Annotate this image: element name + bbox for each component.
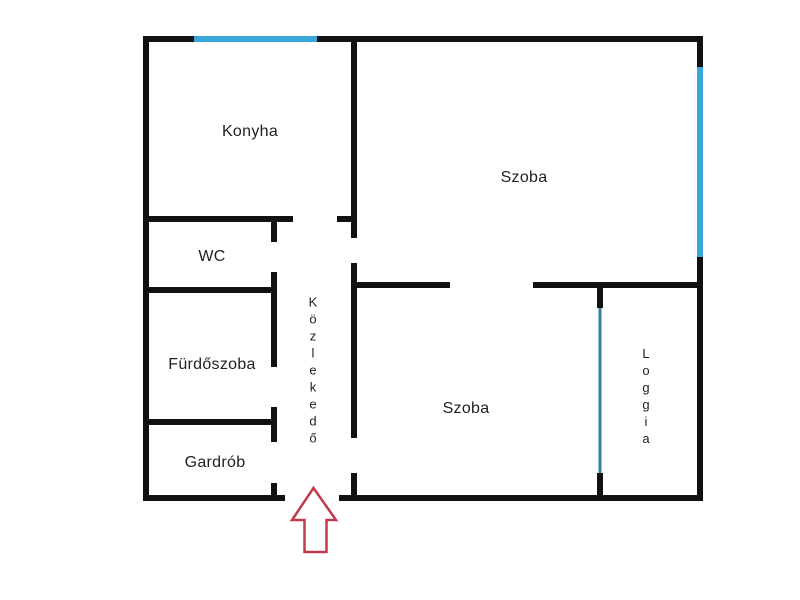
wall-segment — [271, 272, 277, 367]
wall-segment — [597, 473, 603, 501]
floor-plan-drawing — [0, 0, 800, 600]
wall-segment — [143, 287, 277, 293]
wall-segment — [271, 483, 277, 501]
wall-segment — [351, 36, 357, 238]
wall-segment — [351, 282, 450, 288]
window-konyha — [194, 36, 317, 42]
wall-segment — [143, 495, 285, 501]
wall-segment — [351, 473, 357, 501]
room-label-kozlekedo: Közlekedő — [309, 294, 318, 447]
window-loggia — [599, 308, 602, 473]
room-label-wc: WC — [198, 248, 225, 266]
wall-segment — [351, 263, 357, 438]
room-label-szoba-bottom: Szoba — [443, 400, 490, 418]
wall-segment — [143, 419, 277, 425]
wall-segment — [143, 36, 149, 501]
window-szoba — [697, 67, 703, 257]
room-label-konyha: Konyha — [222, 123, 278, 141]
wall-segment — [339, 495, 703, 501]
room-label-loggia: Loggia — [642, 345, 649, 447]
wall-segment — [271, 216, 277, 242]
floor-plan: Konyha WC Fürdőszoba Gardrób Szoba Szoba… — [0, 0, 800, 600]
room-label-furdoszoba: Fürdőszoba — [168, 356, 256, 374]
walls — [143, 36, 703, 501]
wall-segment — [143, 216, 293, 222]
room-label-szoba-top: Szoba — [501, 169, 548, 187]
room-label-gardrob: Gardrób — [185, 454, 246, 472]
entrance-arrow-icon — [292, 488, 336, 552]
wall-segment — [597, 282, 603, 308]
wall-segment — [533, 282, 703, 288]
